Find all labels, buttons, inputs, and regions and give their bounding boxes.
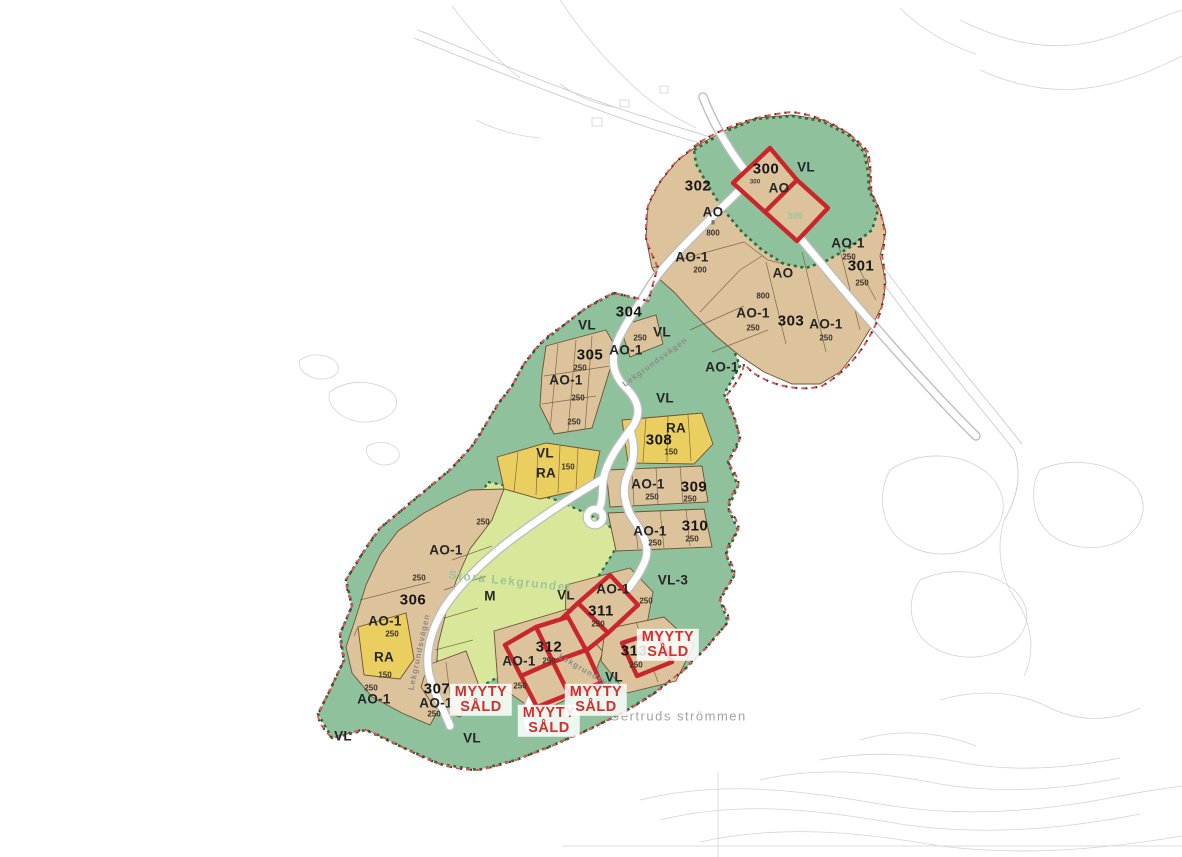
zoning-map: 300300AO302AOII800VL300AO-1200AO-1250301… [0, 0, 1182, 857]
plan-area [318, 97, 976, 770]
plot-cluster-310 [608, 509, 712, 551]
map-canvas [0, 0, 1182, 857]
